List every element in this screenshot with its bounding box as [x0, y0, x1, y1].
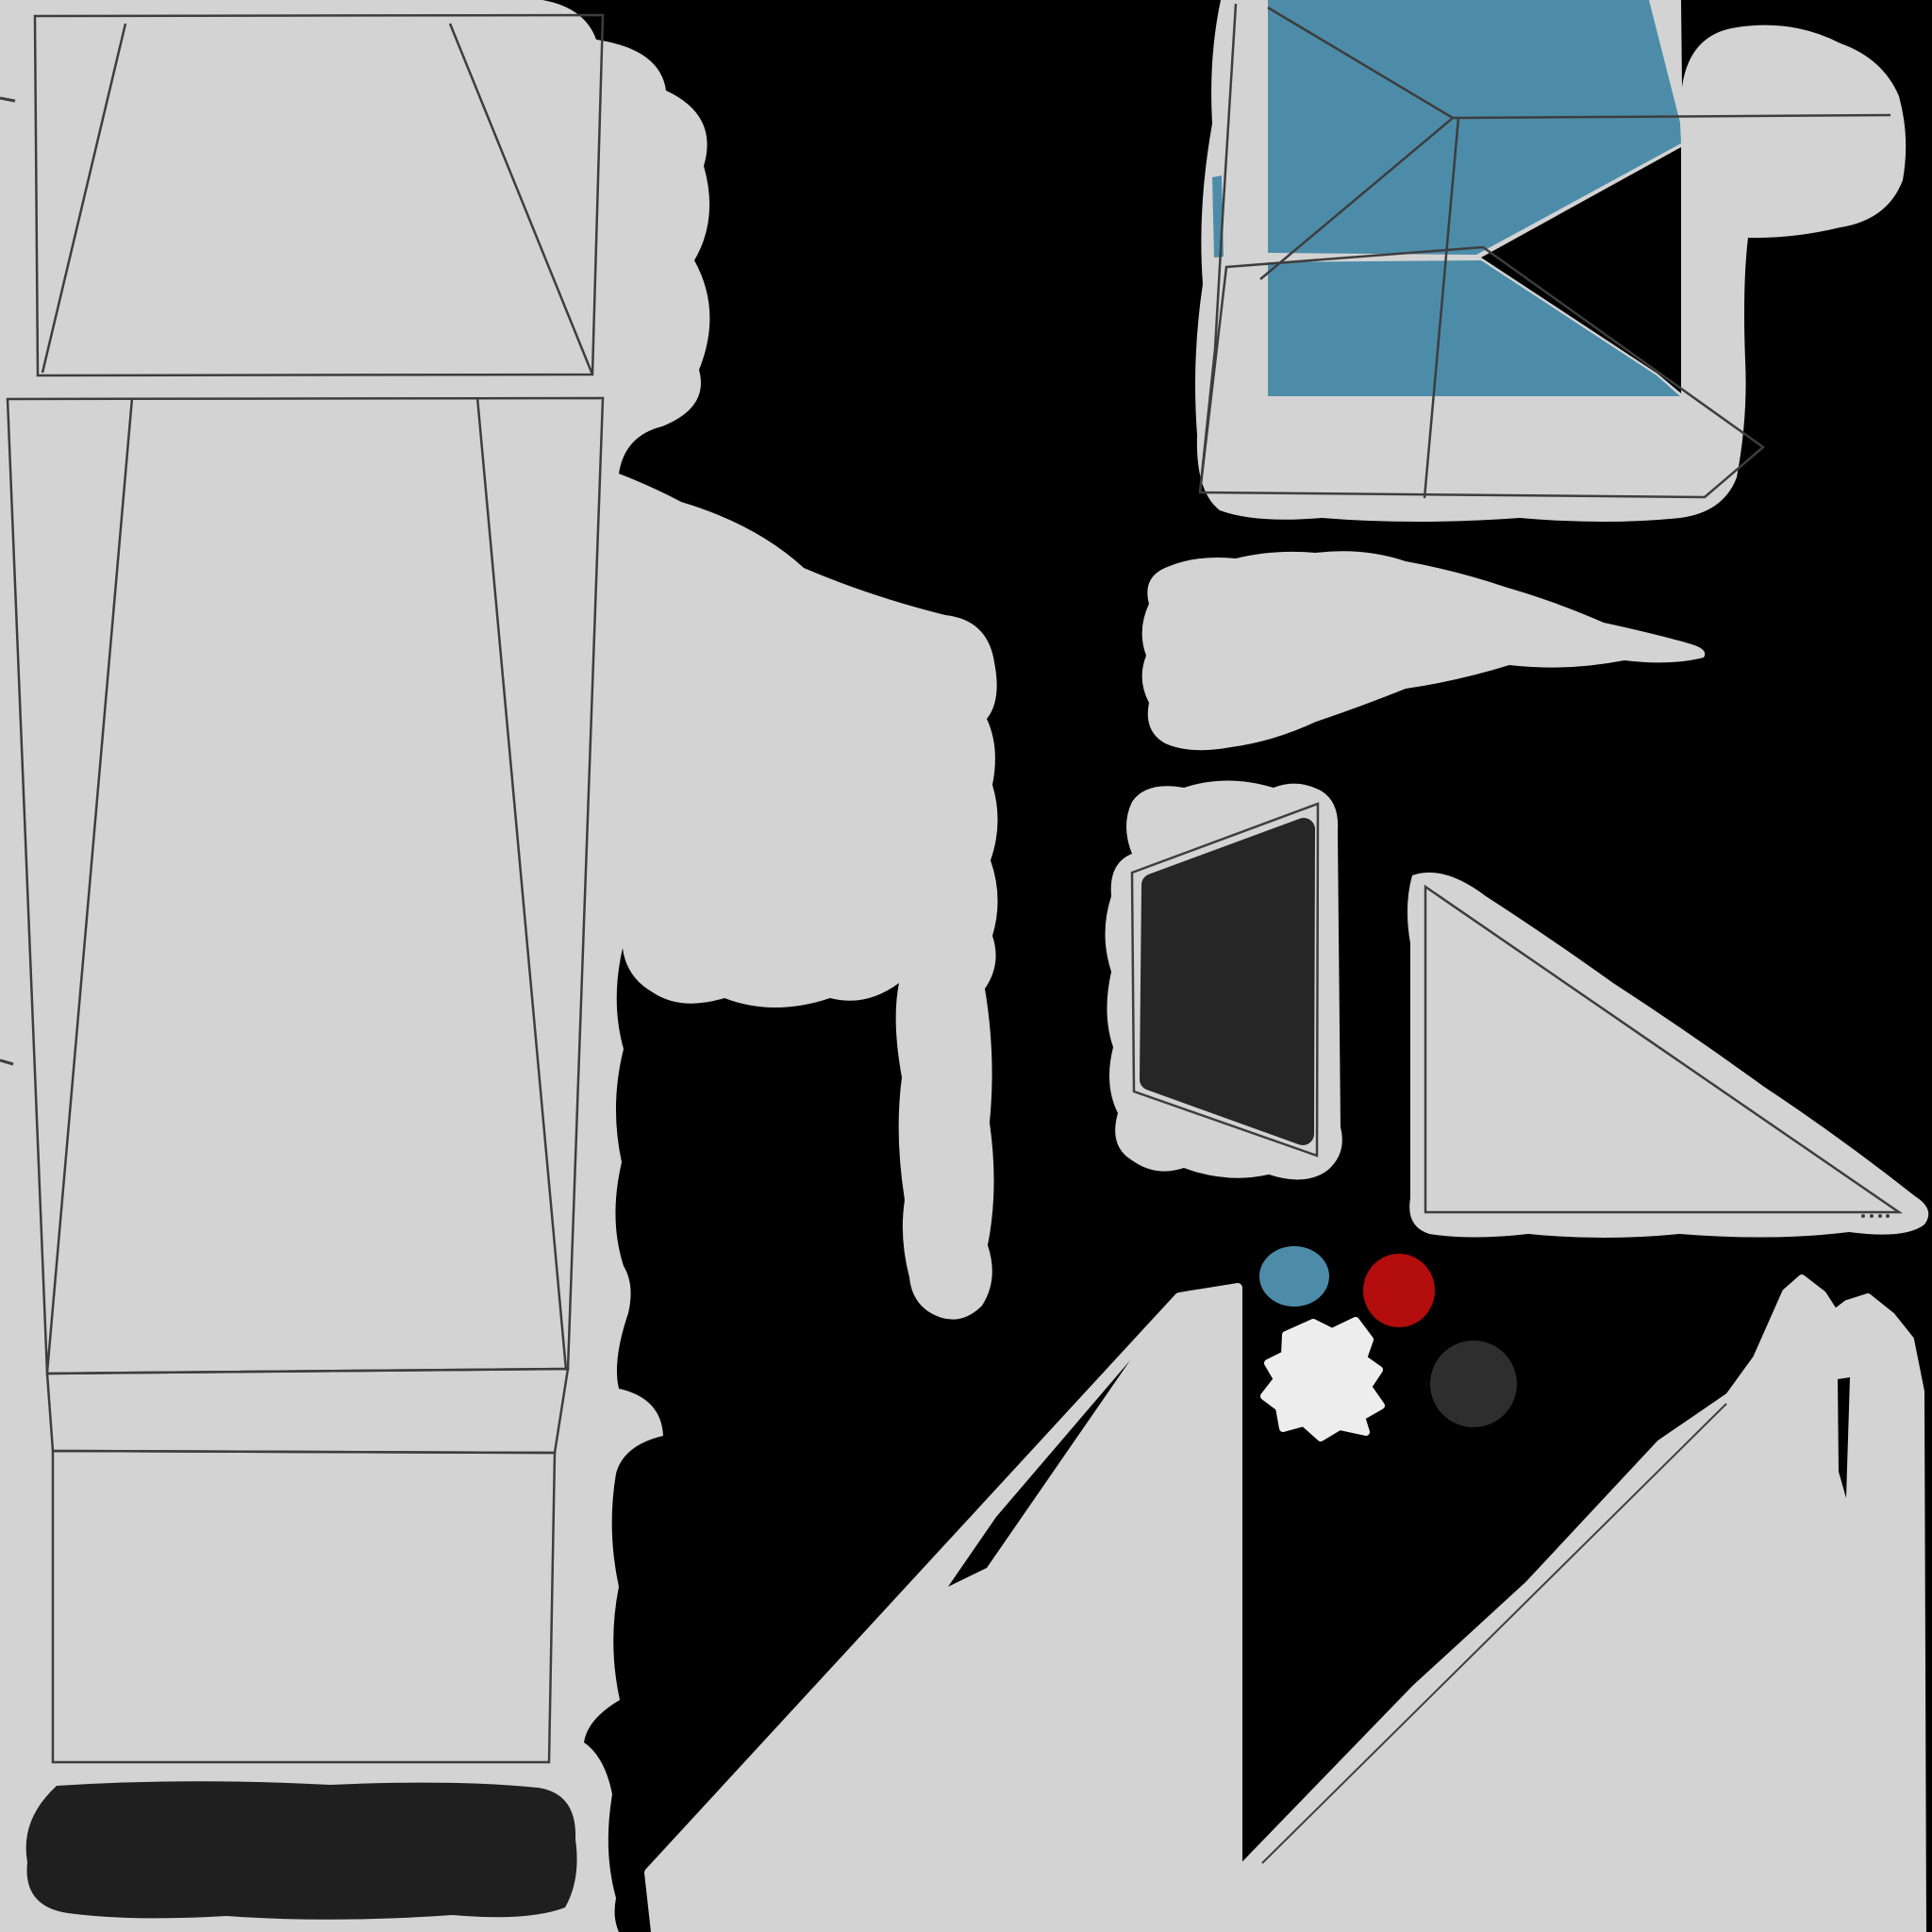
swatch-circle-dark	[1430, 1341, 1517, 1427]
texture-atlas-canvas	[0, 0, 1932, 1932]
swatch-circle-red	[1363, 1254, 1435, 1327]
fin-dot-4	[1886, 1214, 1890, 1218]
bottom-sail-left	[649, 1288, 1238, 1932]
swatch-circle-blue	[1259, 1246, 1329, 1307]
left-field-blob	[0, 0, 998, 1932]
black-bar-blob	[26, 1781, 577, 1920]
window-dark-fill	[1151, 829, 1304, 1134]
bottle-pad-blob	[1142, 551, 1706, 750]
fin-dot-1	[1861, 1214, 1865, 1218]
fin-triangle	[1425, 887, 1899, 1212]
swatch-scribble	[1264, 1321, 1381, 1438]
fin-dot-2	[1870, 1214, 1874, 1218]
fin-dot-3	[1878, 1214, 1882, 1218]
texture-atlas-stage	[0, 0, 1932, 1932]
